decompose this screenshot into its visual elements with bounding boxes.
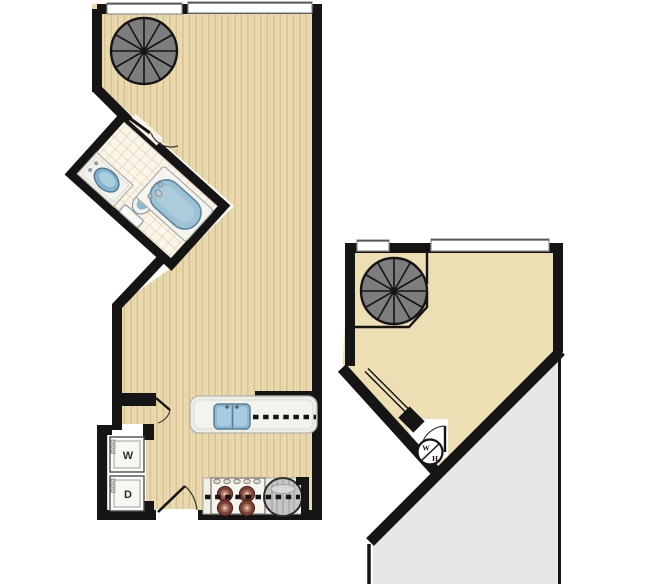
kitchen-counter-bottom (203, 477, 309, 516)
lower-level-unit: W D (71, 2, 322, 521)
water-heater-label-h: H (432, 454, 438, 463)
spiral-staircase-lower (111, 18, 177, 84)
dryer-label: D (124, 489, 132, 501)
spiral-staircase-upper (361, 258, 427, 324)
window (107, 3, 182, 14)
window (188, 2, 312, 13)
loft-windows (357, 239, 549, 251)
window (431, 239, 549, 251)
floor-plan-canvas: W D (0, 0, 650, 585)
washer-label: W (123, 450, 134, 462)
kitchen-sink (214, 404, 250, 429)
window (357, 240, 389, 251)
floor-plan-page: W D (0, 0, 650, 585)
upper-loft-unit: W H (342, 239, 563, 584)
water-heater: W H (418, 440, 443, 465)
closet-door-stub-wall (112, 393, 156, 406)
washer: W (110, 437, 144, 472)
water-heater-label-w: W (422, 444, 430, 453)
kitchen-peninsula (190, 396, 317, 433)
closet-block-wall (404, 412, 419, 427)
dryer: D (110, 476, 144, 511)
lower-windows (107, 2, 312, 14)
